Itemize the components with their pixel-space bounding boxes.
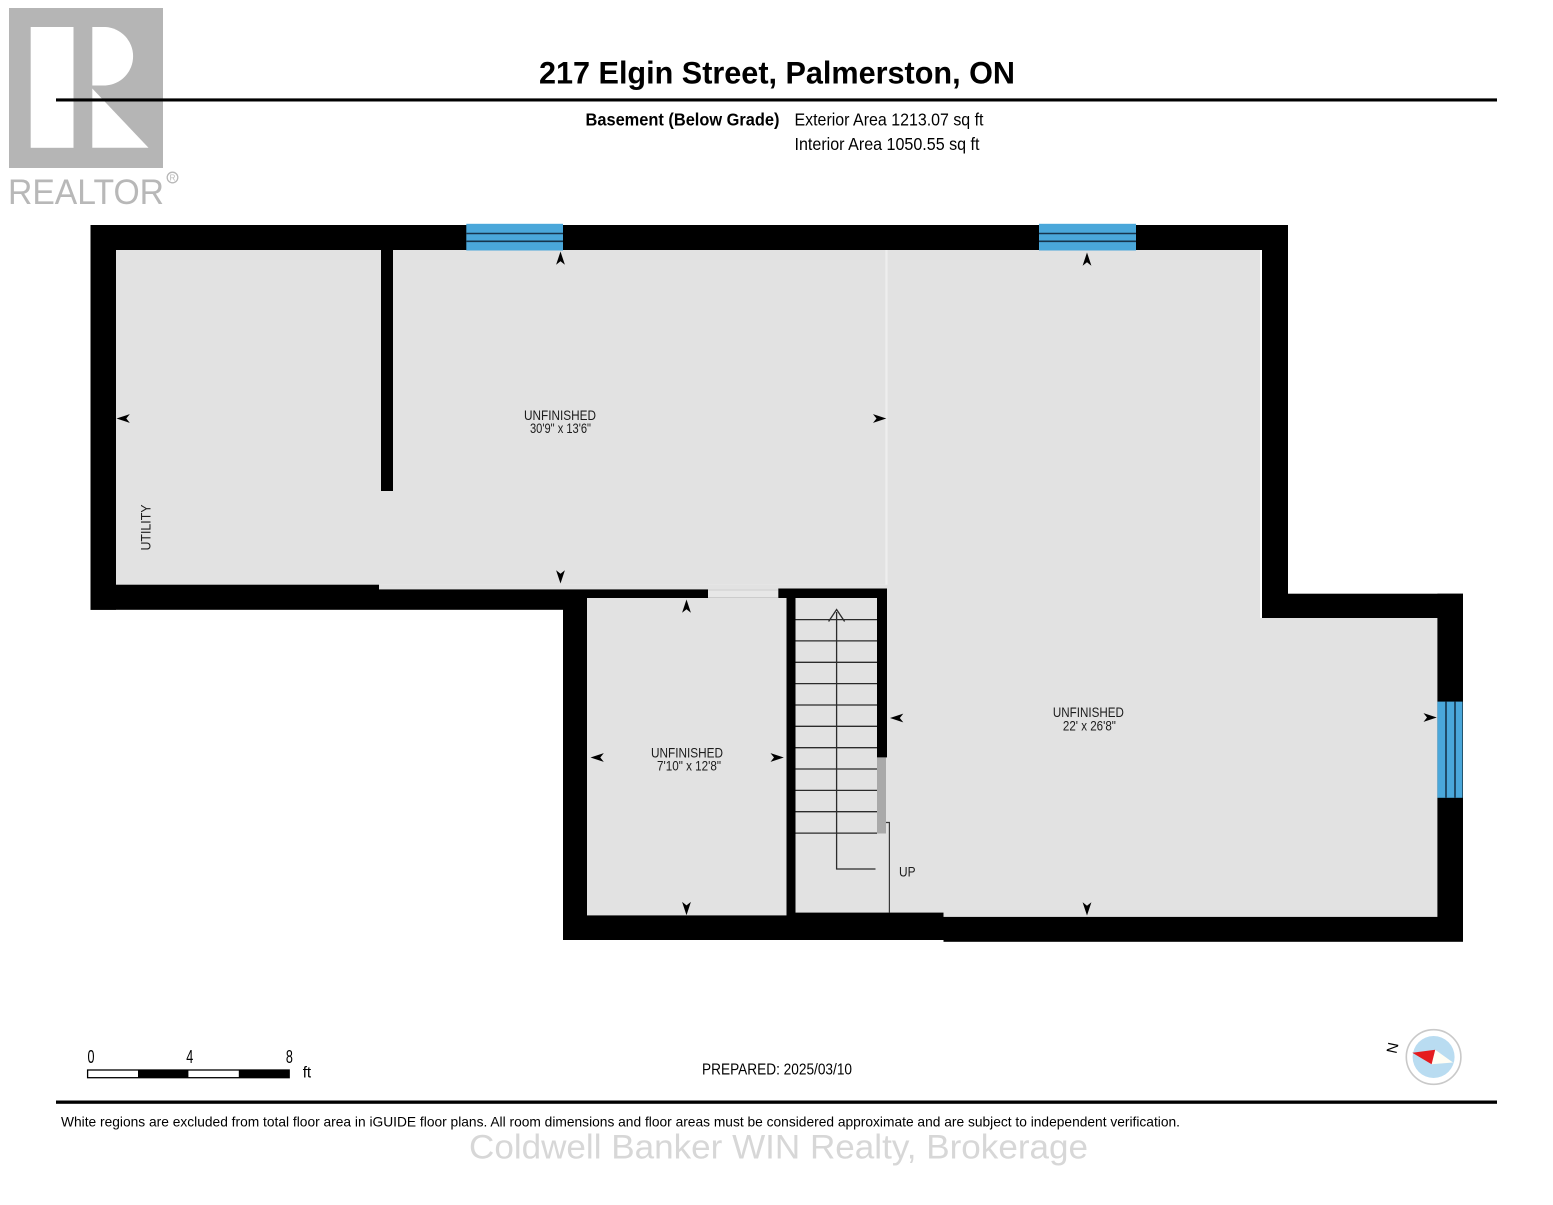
svg-text:REALTOR: REALTOR bbox=[8, 172, 164, 212]
svg-text:Interior Area 1050.55 sq ft: Interior Area 1050.55 sq ft bbox=[795, 134, 980, 154]
svg-text:UP: UP bbox=[899, 864, 916, 880]
svg-text:PREPARED: 2025/03/10: PREPARED: 2025/03/10 bbox=[702, 1062, 852, 1079]
svg-text:217 Elgin Street, Palmerston,: 217 Elgin Street, Palmerston, ON bbox=[539, 55, 1015, 91]
svg-text:UTILITY: UTILITY bbox=[138, 504, 154, 551]
svg-text:30'9" x 13'6": 30'9" x 13'6" bbox=[530, 420, 591, 436]
svg-text:4: 4 bbox=[186, 1046, 193, 1067]
svg-text:7'10" x 12'8": 7'10" x 12'8" bbox=[657, 758, 721, 774]
svg-text:White regions are excluded fro: White regions are excluded from total fl… bbox=[61, 1114, 1180, 1130]
svg-text:Exterior Area 1213.07 sq ft: Exterior Area 1213.07 sq ft bbox=[795, 110, 984, 130]
svg-text:Coldwell Banker WIN Realty, Br: Coldwell Banker WIN Realty, Brokerage bbox=[469, 1129, 1088, 1167]
svg-text:R: R bbox=[170, 174, 176, 183]
svg-text:22' x 26'8": 22' x 26'8" bbox=[1063, 718, 1116, 734]
svg-text:8: 8 bbox=[286, 1046, 293, 1067]
svg-text:0: 0 bbox=[88, 1046, 95, 1067]
svg-text:Basement (Below Grade): Basement (Below Grade) bbox=[586, 110, 780, 130]
svg-text:ft: ft bbox=[303, 1065, 312, 1082]
